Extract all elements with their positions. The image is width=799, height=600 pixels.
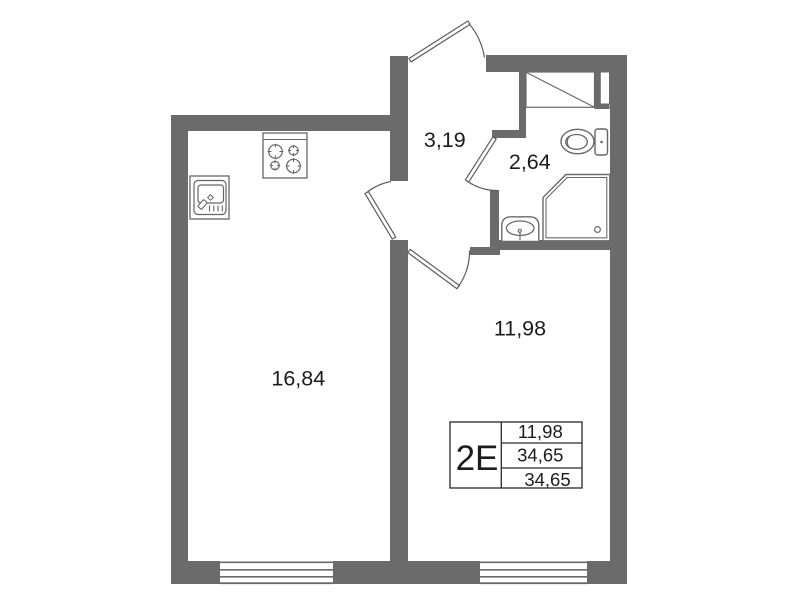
svg-text:34,65: 34,65 [517, 445, 563, 466]
svg-text:3,19: 3,19 [424, 128, 466, 152]
svg-text:2E: 2E [456, 439, 499, 478]
svg-text:11,98: 11,98 [518, 421, 563, 442]
svg-text:16,84: 16,84 [271, 367, 325, 391]
svg-text:11,98: 11,98 [494, 317, 546, 341]
svg-text:34,65: 34,65 [524, 469, 570, 490]
svg-text:2,64: 2,64 [509, 150, 551, 174]
